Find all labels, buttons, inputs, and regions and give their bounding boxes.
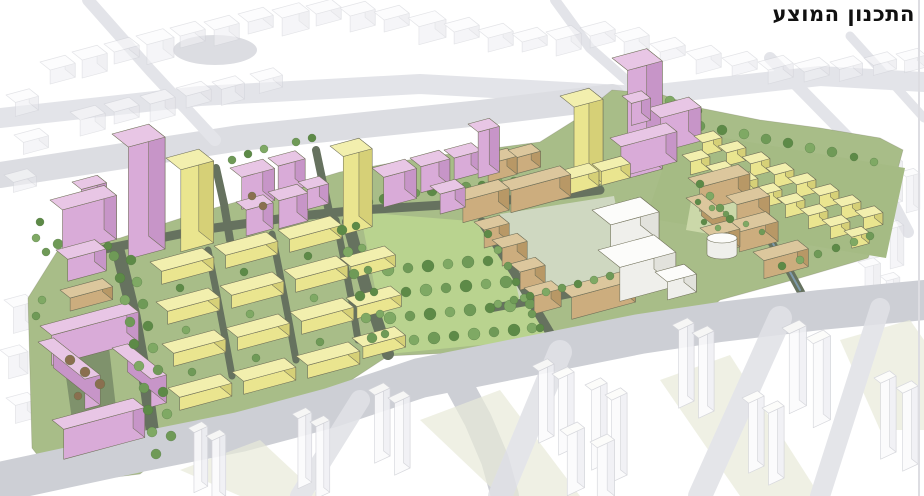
masterplan-3d-scene xyxy=(0,0,924,496)
proposed-plan-rendering: התכנון המוצע xyxy=(0,0,924,496)
water-tank-cylinder xyxy=(707,233,737,259)
page-title: התכנון המוצע xyxy=(773,2,915,26)
